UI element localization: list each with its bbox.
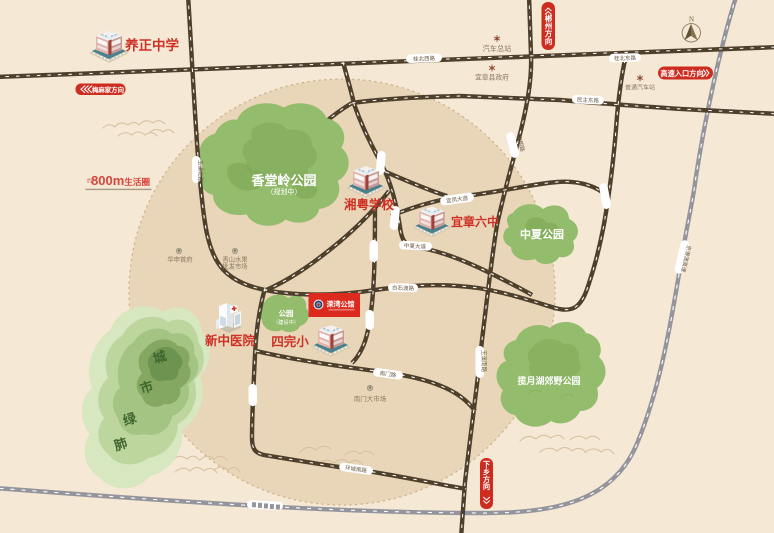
svg-text:华申首府: 华申首府: [167, 255, 192, 264]
svg-text:下乡方向: 下乡方向: [483, 460, 490, 491]
svg-text:普通汽车站: 普通汽车站: [625, 84, 655, 92]
svg-text:湘粤学校: 湘粤学校: [344, 197, 395, 212]
svg-text:宜章县政府: 宜章县政府: [475, 73, 509, 82]
svg-text:香堂岭公园: 香堂岭公园: [250, 173, 316, 188]
svg-text:汽车总站: 汽车总站: [483, 44, 512, 53]
svg-text:郴州方向: 郴州方向: [544, 13, 553, 46]
svg-text:公园: 公园: [279, 309, 294, 318]
svg-text:玉溪南路: 玉溪南路: [480, 350, 488, 373]
svg-text:批发市场: 批发市场: [222, 262, 247, 271]
svg-text:宜章六中: 宜章六中: [451, 214, 499, 229]
svg-text:溁湾公馆: 溁湾公馆: [327, 300, 355, 309]
svg-text:养正中学: 养正中学: [124, 37, 179, 53]
svg-text:高速入口方向: 高速入口方向: [660, 69, 703, 78]
svg-text:揽月湖郊野公园: 揽月湖郊野公园: [517, 375, 580, 386]
svg-text:中夏公园: 中夏公园: [520, 227, 564, 241]
svg-text:新中医院: 新中医院: [205, 333, 256, 348]
svg-text:南门大市场: 南门大市场: [354, 394, 387, 403]
svg-text:N: N: [689, 16, 694, 24]
svg-text:（建设中）: （建设中）: [273, 318, 299, 326]
svg-text:梅麻家方向: 梅麻家方向: [92, 85, 124, 94]
svg-text:四完小: 四完小: [271, 334, 309, 349]
svg-text:香山水果: 香山水果: [222, 255, 248, 264]
svg-text:（规划中）: （规划中）: [267, 187, 302, 196]
svg-text:玉溪北路: 玉溪北路: [197, 160, 205, 183]
